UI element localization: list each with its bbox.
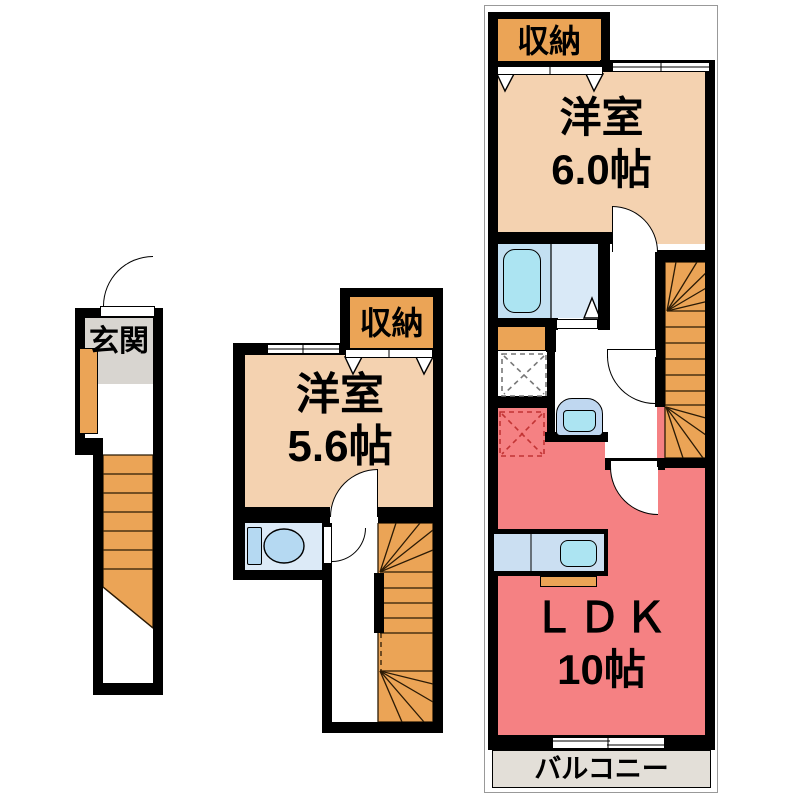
staircase-entrance <box>103 455 153 628</box>
entrance-label: 玄関 <box>84 324 154 360</box>
wall <box>488 232 612 244</box>
closet-door <box>345 349 433 358</box>
wall <box>93 683 163 695</box>
entrance-door-leaf <box>100 306 155 317</box>
balcony-label: バルコニー <box>492 753 711 785</box>
closet-door <box>497 66 603 75</box>
wall <box>488 396 553 408</box>
wall <box>233 343 245 580</box>
shoe-cabinet <box>79 348 98 434</box>
window <box>267 344 340 354</box>
toilet-door-leaf <box>323 526 332 564</box>
wall <box>75 438 103 455</box>
wall <box>547 352 555 442</box>
wall <box>153 308 163 695</box>
wall <box>488 12 498 745</box>
washbasin-bowl <box>563 410 596 432</box>
ldk-label: ＬＤＫ <box>498 595 705 641</box>
staircase-middle <box>378 523 433 722</box>
floor-plan: 玄関 収納 洋室 5.6帖 収納 洋室 6.0帖 ＬＤＫ 10帖 バルコニー <box>0 0 800 800</box>
wall <box>322 722 443 733</box>
entrance-door-arc <box>103 256 153 306</box>
door-opening <box>556 319 598 329</box>
wall <box>233 570 332 580</box>
storage-label: 収納 <box>497 21 601 61</box>
bathtub <box>503 249 541 313</box>
wall <box>546 325 556 352</box>
room-size-label: 5.6帖 <box>245 424 435 470</box>
wall <box>322 570 332 733</box>
wall <box>655 262 665 407</box>
sliding-window <box>552 737 665 749</box>
wall <box>598 244 610 330</box>
room-label: 洋室 <box>498 96 705 140</box>
wall <box>378 507 443 523</box>
toilet-tank <box>247 527 262 565</box>
wall <box>660 458 715 468</box>
wall <box>655 250 715 262</box>
room-label: 洋室 <box>245 372 435 418</box>
storage-label: 収納 <box>350 300 433 345</box>
kitchen-base <box>540 576 597 587</box>
wall <box>374 573 384 633</box>
wall <box>93 455 103 695</box>
kitchen-sink <box>560 540 597 567</box>
wall <box>233 507 330 523</box>
ldk-size-label: 10帖 <box>498 647 705 693</box>
wall <box>705 60 715 750</box>
room-size-label: 6.0帖 <box>498 148 705 192</box>
laundry-counter <box>497 326 546 351</box>
window <box>612 62 710 72</box>
